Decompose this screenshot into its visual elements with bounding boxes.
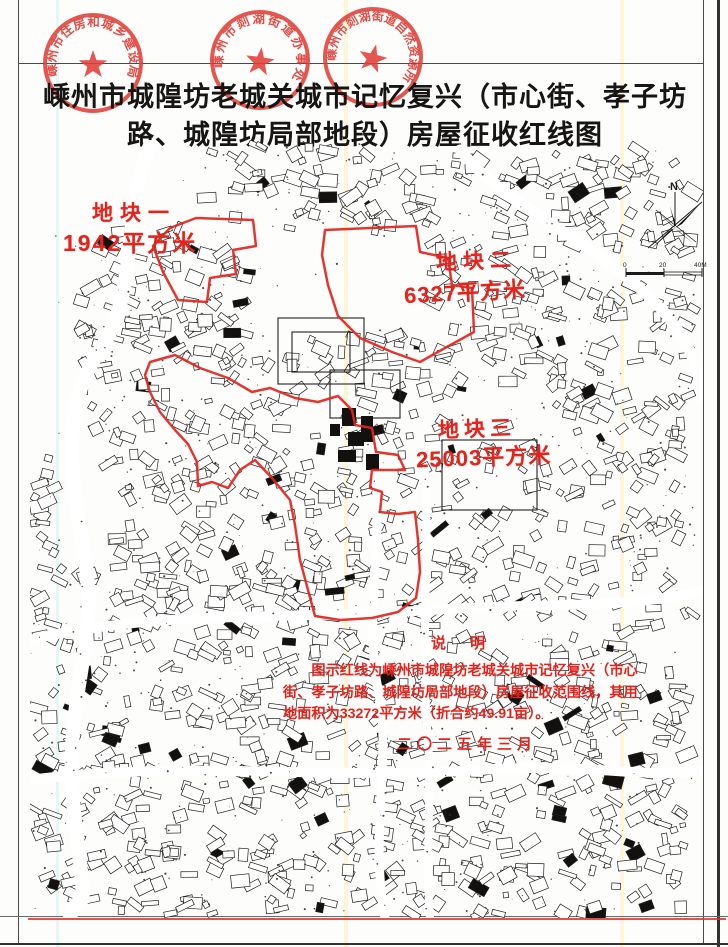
note-block: 说 明 图示红线为嵊州市城隍坊老城关城市记忆复兴（市心 街、孝子坊路、城隍坊局部…: [283, 632, 619, 726]
sheet-frame-bottom: [0, 943, 728, 945]
map-date: 二〇二五年三月: [397, 733, 537, 754]
parcel-3-area: 25003平方米: [415, 438, 551, 475]
parcel-2-name: 地块二: [436, 244, 518, 277]
page-title-line-1: 嵊州市城隍坊老城关城市记忆复兴（市心街、孝子坊: [40, 78, 690, 116]
seal-star-icon: [244, 45, 276, 76]
note-line-1: 图示红线为嵊州市城隍坊老城关城市记忆复兴（市心: [283, 661, 619, 683]
seal-star-icon: [356, 41, 390, 74]
scale-bar: 0 20 40M: [620, 260, 715, 284]
note-line-3: 地面积为33272平方米（折合约49.91亩）。: [283, 704, 619, 726]
map-bottom-red-line: [28, 918, 726, 920]
svg-text:嵊州市剡湖街道办事处: 嵊州市剡湖街道办事处: [208, 4, 316, 86]
north-arrow-icon: N: [640, 176, 710, 268]
parcel-1-name: 地块一: [92, 197, 176, 227]
note-line-2: 街、孝子坊路、城隍坊局部地段）房屋征收范围线，其用: [283, 683, 619, 705]
scale-label-20: 20: [659, 262, 667, 269]
note-heading: 说 明: [431, 632, 619, 653]
sheet-frame-right-inner: [703, 0, 704, 945]
parcel-1-area: 1942平方米: [63, 224, 197, 258]
parcel-2-area: 6327平方米: [403, 272, 526, 310]
sheet-frame-right-outer: [717, 0, 720, 947]
scale-label-40m: 40M: [694, 262, 707, 269]
scanned-map-sheet: { "title": { "line1": "嵊州市城隍坊老城关城市记忆复兴（市…: [0, 0, 728, 947]
sheet-frame-left: [18, 0, 19, 945]
seal-text: 嵊州市剡湖街道办事处: [208, 4, 316, 86]
seal-star-icon: [79, 50, 108, 77]
scale-label-0: 0: [623, 262, 627, 269]
north-label: N: [670, 181, 678, 193]
